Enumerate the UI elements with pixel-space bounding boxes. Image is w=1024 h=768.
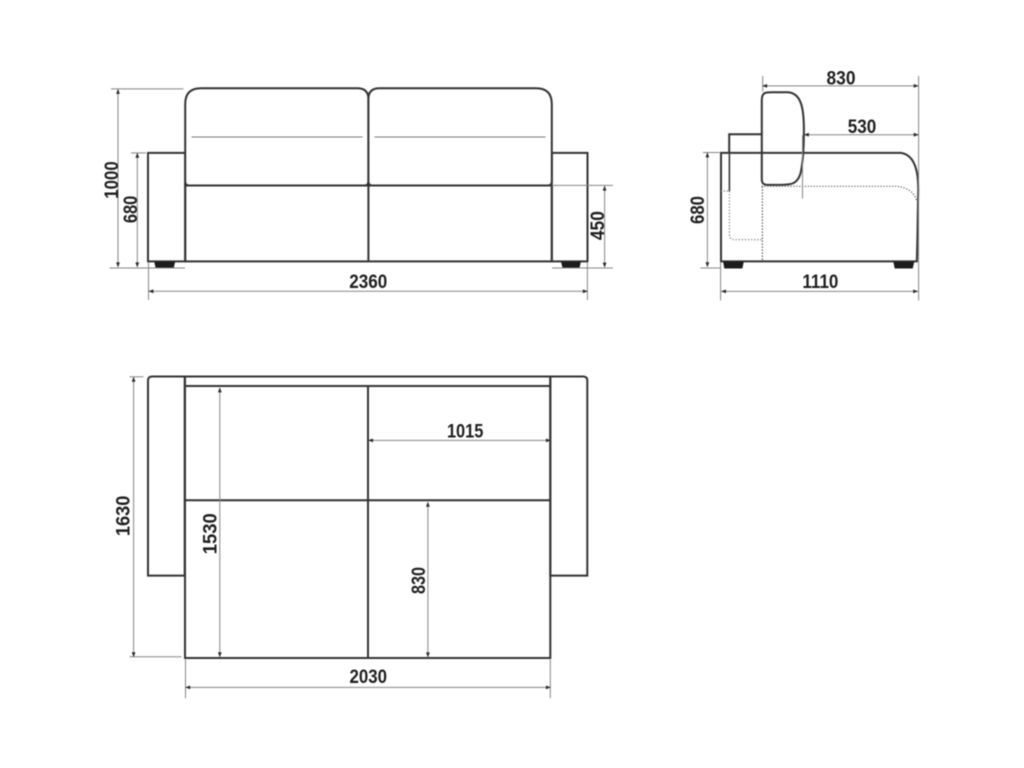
svg-text:530: 530 <box>848 116 877 138</box>
svg-text:830: 830 <box>827 67 856 89</box>
svg-text:1630: 1630 <box>113 496 135 537</box>
svg-text:680: 680 <box>120 196 142 224</box>
svg-text:2360: 2360 <box>349 271 387 293</box>
svg-text:450: 450 <box>587 211 609 240</box>
svg-text:1110: 1110 <box>802 271 838 293</box>
svg-text:1530: 1530 <box>200 513 222 554</box>
svg-text:1000: 1000 <box>101 161 123 199</box>
svg-text:830: 830 <box>408 567 430 594</box>
svg-text:680: 680 <box>687 196 709 224</box>
svg-text:1015: 1015 <box>447 421 484 443</box>
svg-text:2030: 2030 <box>350 666 388 688</box>
